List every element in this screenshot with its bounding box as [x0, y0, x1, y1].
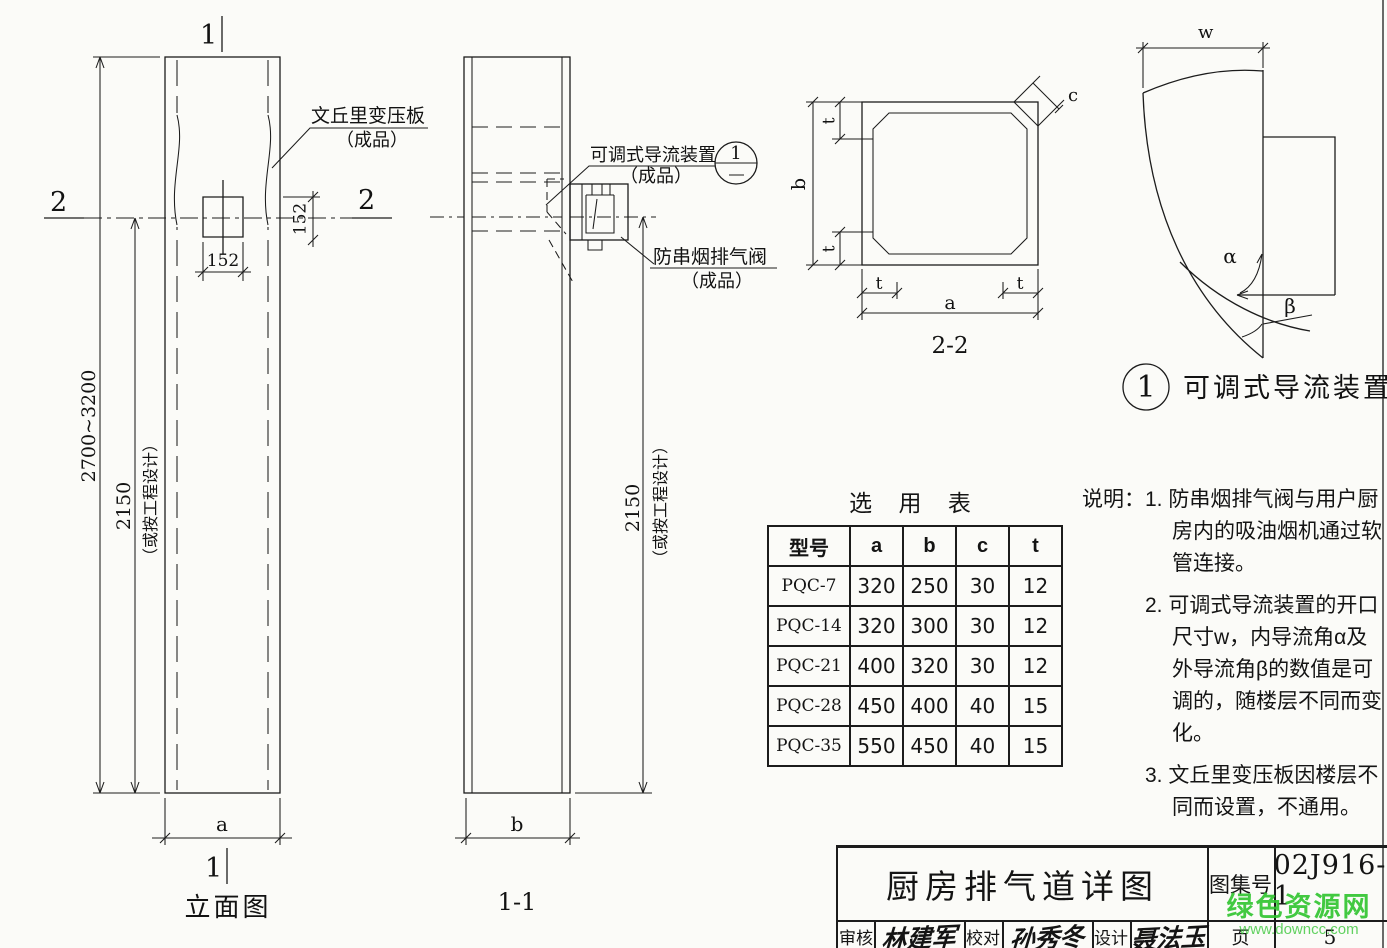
notes: 说明： 1. 防串烟排气阀与用户厨房内的吸油烟机通过软管连接。 2. 可调式导流…: [1082, 484, 1387, 834]
table-row: PQC-21 400 320 30 12: [768, 646, 1062, 686]
table-cell: PQC-21: [768, 646, 850, 686]
dim-b-22: b: [788, 178, 810, 190]
table-cell: 550: [850, 726, 903, 766]
dim-a-22: a: [944, 292, 955, 314]
col-header-model: 型号: [768, 526, 850, 566]
table-cell: 250: [903, 566, 956, 606]
guide-device-callout: 可调式导流装置: [590, 145, 716, 165]
dim-2150-s11: 2150: [622, 484, 644, 532]
table-cell: PQC-14: [768, 606, 850, 646]
table-header-row: 型号 a b c t: [768, 526, 1062, 566]
dim-t-right: t: [1017, 274, 1024, 294]
note-item: 2. 可调式导流装置的开口尺寸w，内导流角α及外导流角β的数值是可调的，随楼层不…: [1145, 590, 1387, 750]
table-cell: PQC-28: [768, 686, 850, 726]
dim-t-top: t: [819, 117, 839, 124]
venturi-plate-callout: 文丘里变压板: [311, 105, 425, 127]
section-marker-1-bottom: 1: [205, 853, 222, 884]
dim-2150-note-s11: （或按工程设计）: [652, 438, 670, 566]
note-item: 3. 文丘里变压板因楼层不同而设置，不通用。: [1145, 760, 1387, 824]
detail-ref-bubble-number: 1: [730, 143, 741, 164]
review-signature: 林建军: [873, 920, 964, 948]
table-cell: 320: [850, 606, 903, 646]
design-label: 设计: [1092, 922, 1130, 948]
dim-b: b: [511, 812, 524, 836]
detail-title: 可调式导流装置: [1183, 373, 1387, 403]
selection-table: 选 用 表 型号 a b c t PQC-7 320 250 30 12 PQC…: [767, 484, 1063, 767]
table-cell: 450: [903, 726, 956, 766]
section-2-2-view: b t t t t a c 2-2: [788, 76, 1078, 359]
review-label: 审核: [838, 922, 874, 948]
dim-2150-note: （或按工程设计）: [142, 436, 160, 564]
table-cell: 40: [956, 686, 1009, 726]
table-row: PQC-14 320 300 30 12: [768, 606, 1062, 646]
dim-t-left: t: [876, 274, 883, 294]
angle-alpha: α: [1223, 244, 1237, 268]
table-cell: 400: [850, 646, 903, 686]
guide-device-callout-sub: （成品）: [620, 166, 692, 186]
drawing-sheet: 1 2 2 文丘里变压板 （成品） 2700~3200 2150 （或按工程设计…: [0, 0, 1387, 948]
page-number: 5: [1274, 922, 1386, 948]
detail-1-view: w α β 1 可调式导流装置: [1123, 22, 1387, 410]
dim-c: c: [1068, 85, 1078, 106]
col-header-t: t: [1009, 526, 1062, 566]
table-cell: 12: [1009, 606, 1062, 646]
dim-w: w: [1198, 22, 1214, 43]
col-header-a: a: [850, 526, 903, 566]
dim-152-vertical: 152: [290, 203, 310, 235]
venturi-plate-callout-sub: （成品）: [336, 130, 408, 150]
table-cell: 12: [1009, 646, 1062, 686]
table-cell: 15: [1009, 726, 1062, 766]
valve-callout-sub: （成品）: [681, 271, 753, 291]
angle-beta: β: [1284, 294, 1296, 318]
notes-body: 1. 防串烟排气阀与用户厨房内的吸油烟机通过软管连接。 2. 可调式导流装置的开…: [1145, 484, 1387, 834]
dim-2150: 2150: [113, 482, 135, 530]
table-cell: 40: [956, 726, 1009, 766]
atlas-number-label: 图集号: [1207, 848, 1274, 920]
check-signature: 孙秀冬: [1001, 920, 1092, 948]
col-header-b: b: [903, 526, 956, 566]
table-cell: 450: [850, 686, 903, 726]
check-label: 校对: [964, 922, 1002, 948]
table-cell: 320: [850, 566, 903, 606]
drawing-title: 厨房排气道详图: [838, 848, 1207, 920]
dim-152-horizontal: 152: [207, 251, 239, 271]
dim-total-height: 2700~3200: [78, 370, 100, 483]
selection-table-grid: 型号 a b c t PQC-7 320 250 30 12 PQC-14 32…: [767, 525, 1063, 767]
section-1-1-view: 可调式导流装置 （成品） 1 防串烟排气阀 （成品） 2150 （或按工程设计）…: [430, 57, 777, 916]
table-cell: 12: [1009, 566, 1062, 606]
note-item: 1. 防串烟排气阀与用户厨房内的吸油烟机通过软管连接。: [1145, 484, 1387, 580]
table-cell: 400: [903, 686, 956, 726]
table-cell: PQC-7: [768, 566, 850, 606]
elevation-title: 立面图: [184, 892, 271, 922]
table-cell: 320: [903, 646, 956, 686]
table-cell: PQC-35: [768, 726, 850, 766]
section-marker-2-left: 2: [50, 187, 67, 218]
table-cell: 30: [956, 606, 1009, 646]
section-2-2-title: 2-2: [931, 333, 968, 359]
table-cell: 30: [956, 646, 1009, 686]
notes-label: 说明：: [1082, 484, 1145, 834]
design-signature: 聂法玉: [1129, 920, 1207, 948]
table-cell: 15: [1009, 686, 1062, 726]
table-row: PQC-7 320 250 30 12: [768, 566, 1062, 606]
section-marker-2-right: 2: [358, 185, 375, 216]
table-row: PQC-28 450 400 40 15: [768, 686, 1062, 726]
page-label: 页: [1207, 922, 1274, 948]
table-row: PQC-35 550 450 40 15: [768, 726, 1062, 766]
section-1-1-title: 1-1: [498, 888, 537, 916]
detail-bubble-number: 1: [1136, 370, 1155, 405]
col-header-c: c: [956, 526, 1009, 566]
valve-callout: 防串烟排气阀: [653, 246, 767, 268]
dim-a: a: [216, 812, 228, 836]
table-cell: 30: [956, 566, 1009, 606]
selection-table-title: 选 用 表: [767, 484, 1063, 518]
atlas-number: 02J916-1: [1274, 848, 1386, 914]
table-cell: 300: [903, 606, 956, 646]
elevation-view: 1 2 2 文丘里变压板 （成品） 2700~3200 2150 （或按工程设计…: [44, 16, 428, 922]
dim-t-bottom: t: [819, 245, 839, 252]
section-marker-1-top: 1: [200, 20, 217, 51]
title-block: 厨房排气道详图 图集号 02J916-1 审核 林建军 校对 孙秀冬 设计 聂法…: [836, 845, 1387, 948]
